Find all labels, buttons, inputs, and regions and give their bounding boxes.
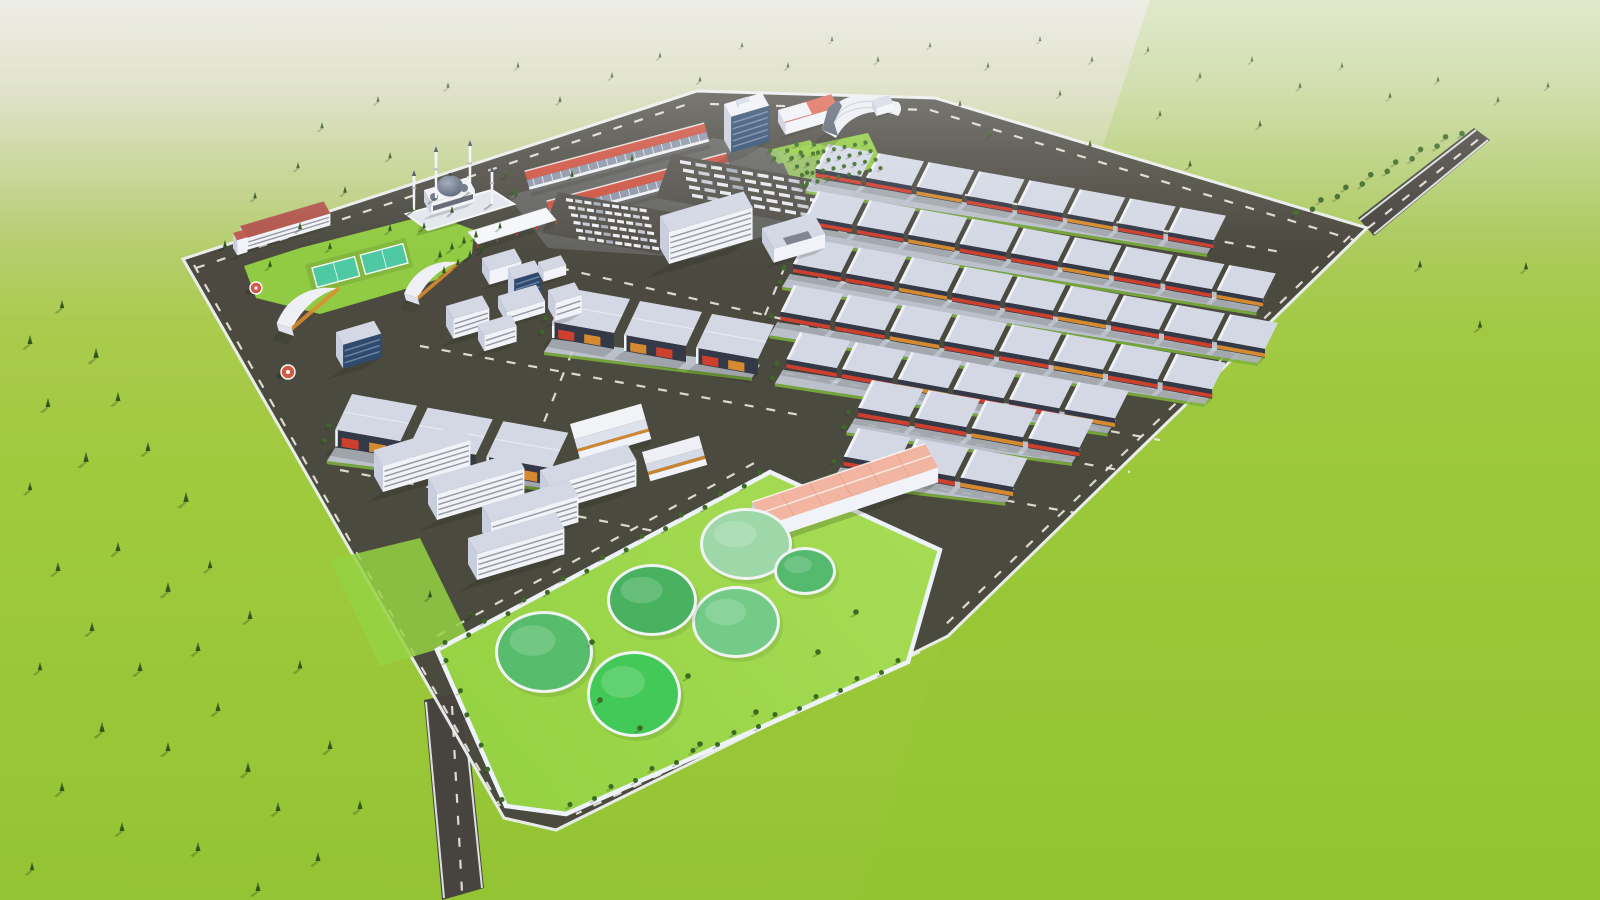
bush: [521, 597, 526, 602]
bush: [561, 576, 566, 581]
bush: [443, 658, 448, 663]
bush: [813, 694, 818, 699]
bush: [479, 743, 484, 748]
bush: [485, 767, 490, 772]
bush: [637, 725, 643, 731]
bush: [639, 534, 644, 539]
bush: [832, 459, 836, 463]
bush: [466, 632, 471, 637]
bush: [674, 760, 679, 765]
pond-sheen: [705, 599, 746, 625]
bush: [506, 611, 511, 616]
pilaster: [696, 348, 699, 364]
bush: [797, 706, 802, 711]
bush: [853, 609, 859, 615]
bush: [685, 673, 691, 679]
horizon-haze: [0, 0, 1600, 250]
bush: [838, 688, 843, 693]
bush: [567, 802, 572, 807]
pond-sheen: [714, 521, 757, 547]
bush: [545, 590, 550, 595]
pilaster: [624, 335, 627, 351]
bush: [879, 670, 884, 675]
bush: [322, 438, 326, 442]
bush: [775, 361, 779, 365]
bush: [697, 741, 703, 747]
bush: [742, 484, 747, 489]
bush: [815, 649, 821, 655]
bush: [778, 280, 782, 284]
bush: [633, 778, 638, 783]
bush: [782, 266, 786, 270]
bush: [597, 697, 603, 703]
bush: [442, 640, 447, 645]
bush: [540, 330, 544, 334]
scene-canvas: [0, 0, 1600, 900]
bush: [842, 425, 846, 429]
bush: [327, 423, 331, 427]
bush: [846, 410, 850, 414]
bush: [679, 512, 684, 517]
pilaster: [335, 430, 338, 447]
bush: [649, 766, 654, 771]
bush: [544, 316, 548, 320]
bush: [715, 742, 720, 747]
bush: [770, 376, 774, 380]
bush: [663, 526, 668, 531]
bush: [731, 730, 736, 735]
bush: [608, 784, 613, 789]
pond-sheen: [784, 556, 812, 573]
bush: [690, 748, 695, 753]
bush: [854, 676, 859, 681]
bush: [772, 712, 777, 717]
bush: [769, 314, 773, 318]
bush: [753, 709, 759, 715]
kiosk-finial: [286, 370, 290, 374]
bush: [624, 547, 629, 552]
bush: [499, 797, 504, 802]
bush: [482, 619, 487, 624]
bush: [592, 796, 597, 801]
pond-sheen: [601, 666, 645, 698]
bush: [895, 658, 900, 663]
bush: [702, 505, 707, 510]
bush: [757, 470, 762, 475]
pond-sheen: [621, 577, 663, 603]
bush: [584, 569, 589, 574]
bush: [756, 724, 761, 729]
bush: [718, 491, 723, 496]
bush: [600, 555, 605, 560]
bush: [458, 688, 463, 693]
kiosk-finial: [254, 286, 257, 289]
bush: [589, 639, 595, 645]
bush: [464, 712, 469, 717]
render-viewport: [0, 0, 1600, 900]
pond-sheen: [510, 625, 556, 655]
